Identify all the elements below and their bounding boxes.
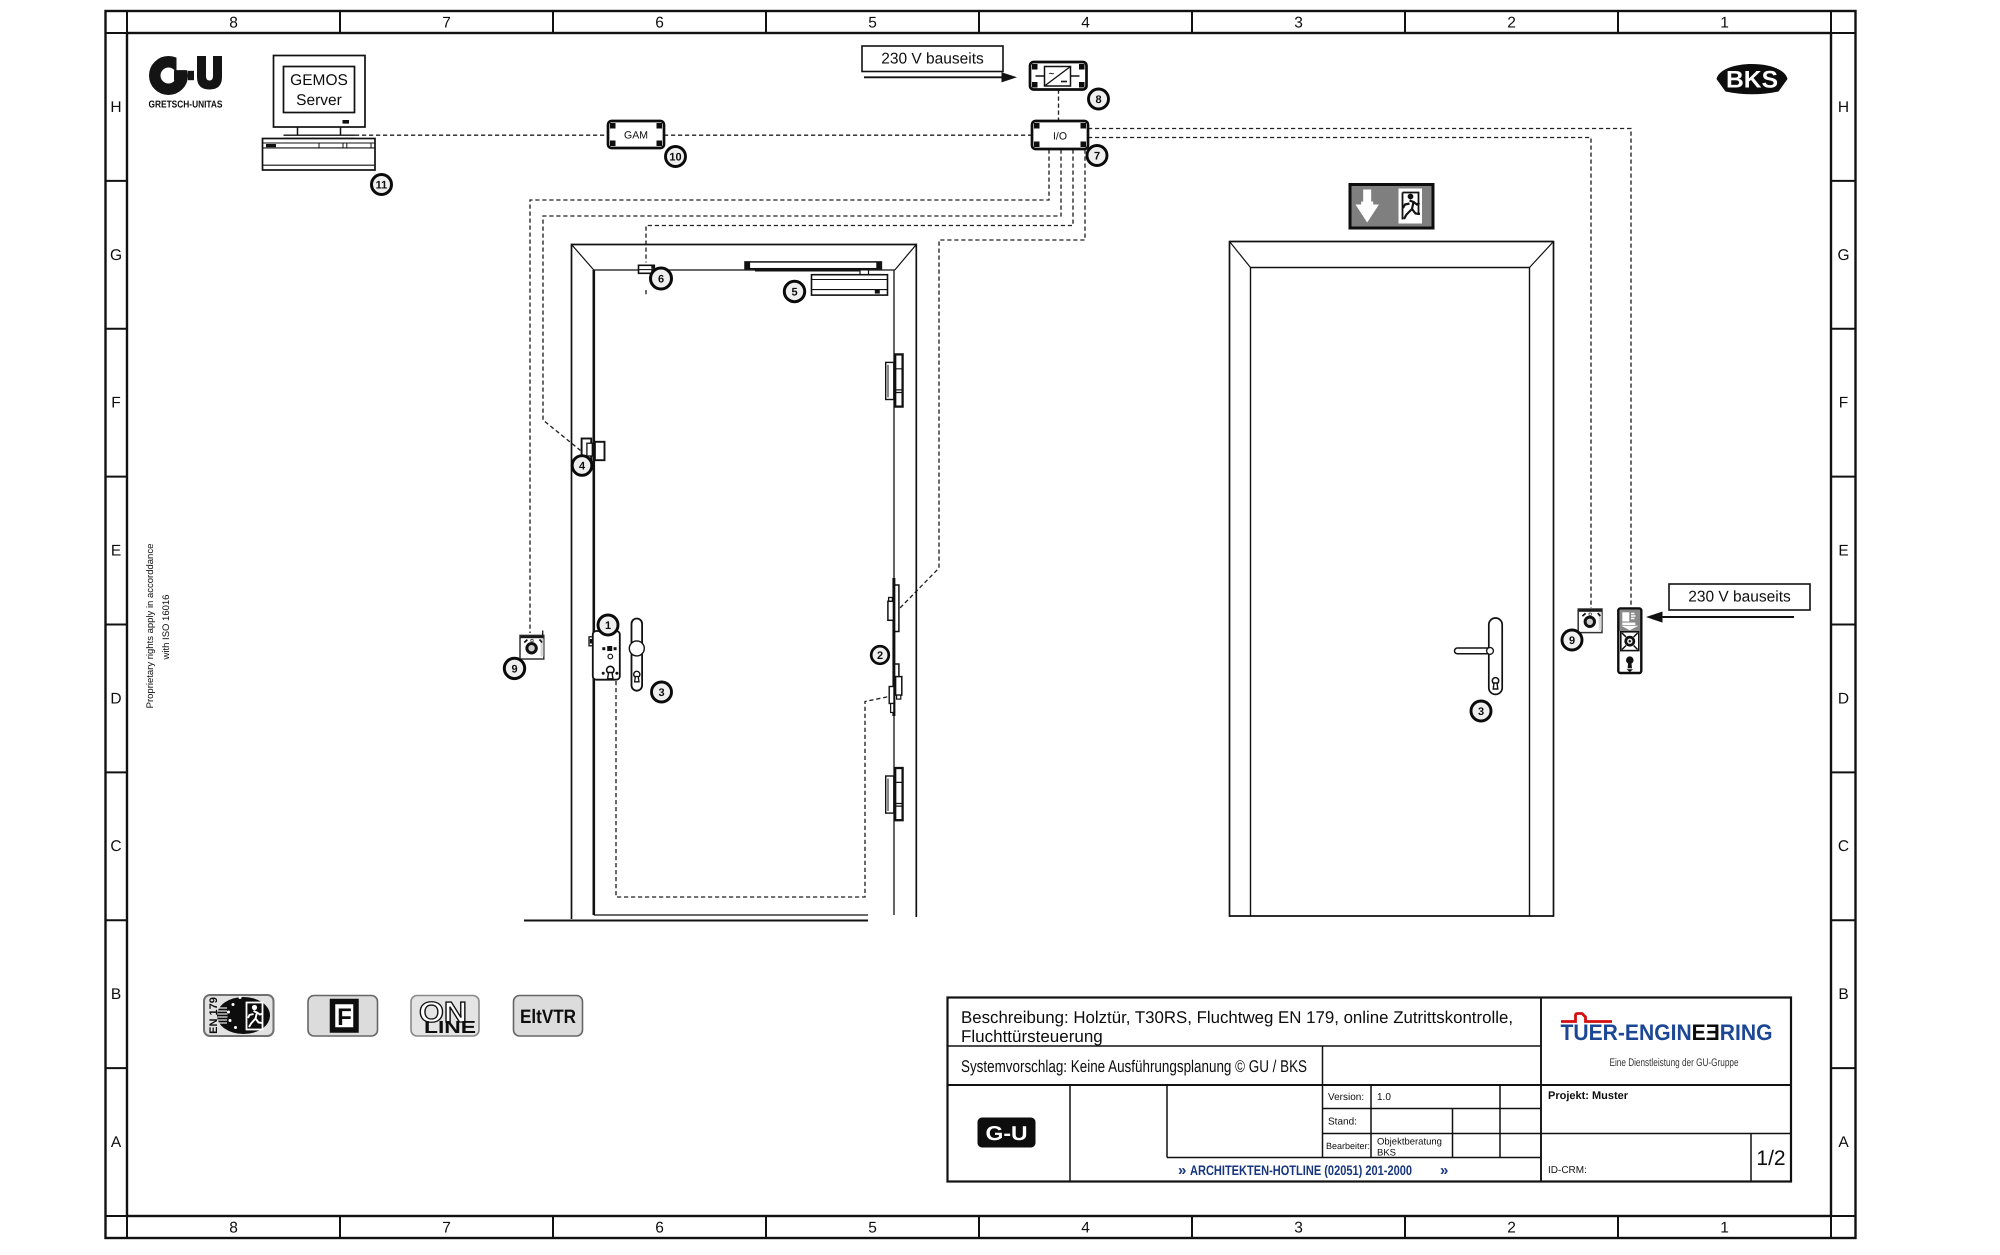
svg-text:»: » <box>1178 1162 1186 1179</box>
svg-text:»: » <box>1440 1162 1448 1179</box>
svg-text:BKS: BKS <box>1726 67 1778 94</box>
svg-text:Version:: Version: <box>1328 1092 1364 1103</box>
svg-text:5: 5 <box>868 1220 877 1237</box>
svg-text:ID-CRM:: ID-CRM: <box>1548 1165 1587 1176</box>
svg-text:with ISO 16016: with ISO 16016 <box>161 595 172 661</box>
svg-text:4: 4 <box>579 461 586 473</box>
svg-text:D: D <box>110 691 121 708</box>
svg-text:ARCHITEKTEN-HOTLINE (02051) 20: ARCHITEKTEN-HOTLINE (02051) 201-2000 <box>1190 1163 1412 1178</box>
svg-text:I/O: I/O <box>1053 131 1067 143</box>
svg-text:1/2: 1/2 <box>1756 1147 1785 1170</box>
svg-text:GEMOS: GEMOS <box>290 72 348 89</box>
svg-text:LINE: LINE <box>424 1017 476 1037</box>
svg-text:5: 5 <box>791 287 797 299</box>
svg-text:11: 11 <box>376 180 388 192</box>
svg-text:Systemvorschlag: Keine Ausführ: Systemvorschlag: Keine Ausführungsplanun… <box>961 1057 1307 1076</box>
svg-text:E: E <box>1838 543 1848 560</box>
svg-text:H: H <box>110 99 121 116</box>
svg-text:D: D <box>1838 691 1849 708</box>
svg-text:G: G <box>1837 247 1849 264</box>
svg-text:Proprietary rights apply in ac: Proprietary rights apply in accorddance <box>145 544 156 709</box>
svg-text:B: B <box>111 986 121 1003</box>
svg-text:~: ~ <box>1049 69 1054 79</box>
svg-text:Server: Server <box>296 92 342 109</box>
svg-text:2: 2 <box>1507 1220 1516 1237</box>
svg-text:EltVTR: EltVTR <box>520 1006 576 1028</box>
svg-text:F: F <box>1839 395 1848 412</box>
svg-text:Eine Dienstleistung der GU-Gru: Eine Dienstleistung der GU-Gruppe <box>1610 1057 1739 1069</box>
svg-text:A: A <box>111 1134 122 1151</box>
svg-text:Projekt: Muster: Projekt: Muster <box>1548 1090 1629 1102</box>
svg-text:1: 1 <box>1720 1220 1729 1237</box>
svg-text:3: 3 <box>658 687 664 699</box>
svg-text:8: 8 <box>229 1220 238 1237</box>
svg-text:8: 8 <box>1095 94 1101 106</box>
svg-text:230 V bauseits: 230 V bauseits <box>1688 589 1791 606</box>
svg-text:Fluchttürsteuerung: Fluchttürsteuerung <box>961 1027 1103 1046</box>
svg-text:1: 1 <box>605 620 611 632</box>
svg-text:GAM: GAM <box>624 130 648 142</box>
svg-text:2: 2 <box>877 650 883 662</box>
svg-text:F: F <box>337 1004 352 1031</box>
svg-text:Bearbeiter:: Bearbeiter: <box>1326 1141 1370 1151</box>
svg-text:6: 6 <box>655 15 664 32</box>
svg-text:4: 4 <box>1081 15 1090 32</box>
svg-text:7: 7 <box>442 1220 451 1237</box>
svg-text:1: 1 <box>1720 15 1729 32</box>
svg-text:BKS: BKS <box>1377 1148 1396 1159</box>
svg-text:Beschreibung: Holztür, T30RS,: Beschreibung: Holztür, T30RS, Fluchtweg … <box>961 1008 1513 1027</box>
svg-text:6: 6 <box>658 274 664 286</box>
svg-text:G: G <box>110 247 122 264</box>
svg-text:Stand:: Stand: <box>1328 1117 1357 1128</box>
svg-text:2: 2 <box>1507 15 1516 32</box>
svg-text:1.0: 1.0 <box>1377 1092 1391 1103</box>
svg-text:7: 7 <box>442 15 451 32</box>
svg-text:9: 9 <box>511 663 517 675</box>
svg-text:Objektberatung: Objektberatung <box>1377 1137 1442 1148</box>
svg-text:6: 6 <box>655 1220 664 1237</box>
svg-text:GRETSCH-UNITAS: GRETSCH-UNITAS <box>149 100 223 111</box>
svg-text:7: 7 <box>1094 151 1100 163</box>
svg-text:C: C <box>1838 838 1849 855</box>
svg-text:F: F <box>111 395 120 412</box>
svg-text:9: 9 <box>1569 635 1575 647</box>
svg-text:C: C <box>110 838 121 855</box>
svg-text:TUER-ENGINEƎRING: TUER-ENGINEƎRING <box>1561 1020 1773 1045</box>
svg-text:A: A <box>1838 1134 1849 1151</box>
svg-text:4: 4 <box>1081 1220 1090 1237</box>
svg-text:3: 3 <box>1294 1220 1303 1237</box>
svg-text:3: 3 <box>1294 15 1303 32</box>
svg-text:5: 5 <box>868 15 877 32</box>
svg-text:H: H <box>1838 99 1849 116</box>
svg-text:G-U: G-U <box>986 1123 1028 1145</box>
svg-text:8: 8 <box>229 15 238 32</box>
svg-text:B: B <box>1838 986 1848 1003</box>
svg-text:E: E <box>111 543 121 560</box>
svg-text:10: 10 <box>669 152 681 164</box>
svg-text:3: 3 <box>1478 706 1484 718</box>
svg-text:230 V bauseits: 230 V bauseits <box>881 51 984 68</box>
